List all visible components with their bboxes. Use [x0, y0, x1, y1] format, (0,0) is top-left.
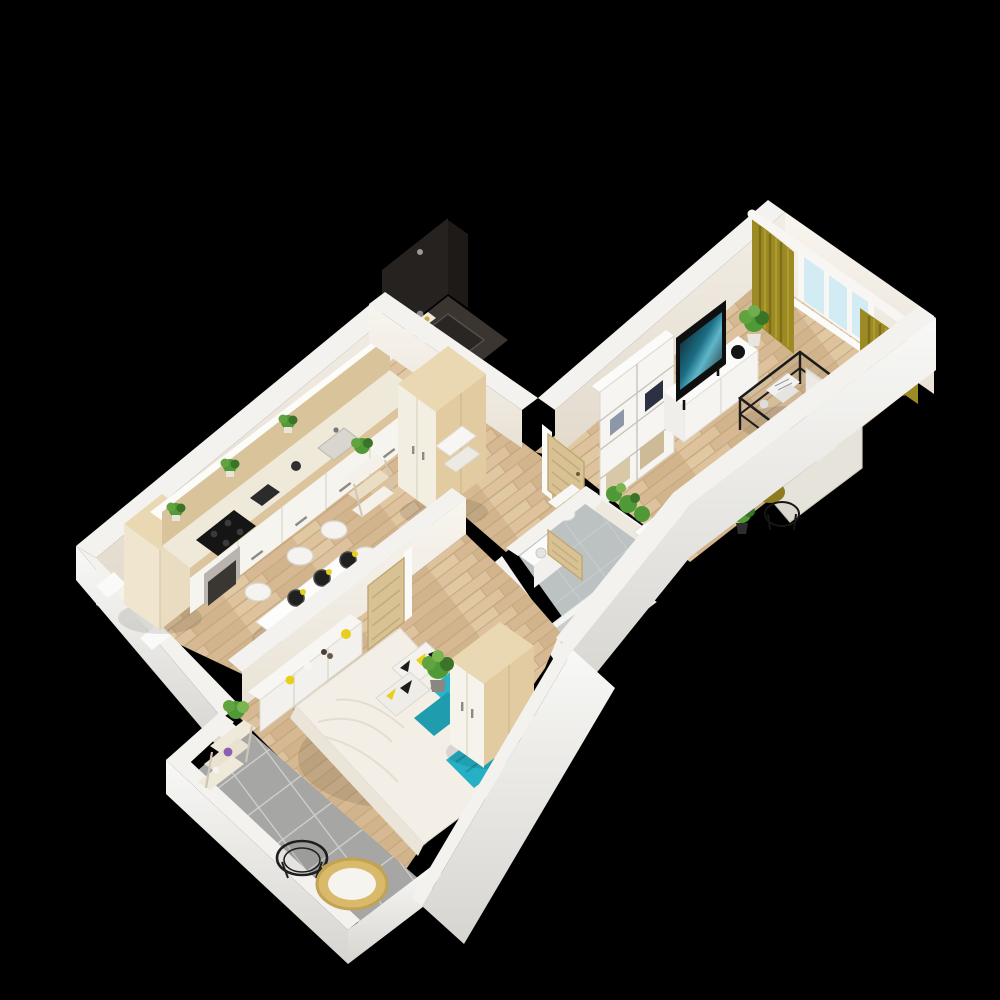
purple-vase [224, 748, 233, 757]
shower-side-wall [448, 220, 468, 308]
rattan-chair [317, 859, 387, 909]
cup [760, 400, 769, 409]
floor-plan-stage: 3D isometric floor plan of a one-bedroom… [0, 0, 1000, 1000]
shower-head-icon [417, 249, 423, 255]
side-table [765, 502, 799, 530]
kettle [291, 461, 301, 471]
white-vase [213, 767, 220, 774]
faucet [333, 427, 338, 432]
speaker [731, 345, 745, 359]
floor-plan-render: 3D isometric floor plan of a one-bedroom… [0, 0, 1000, 1000]
door-frame [404, 546, 412, 622]
door-handle [576, 472, 580, 476]
